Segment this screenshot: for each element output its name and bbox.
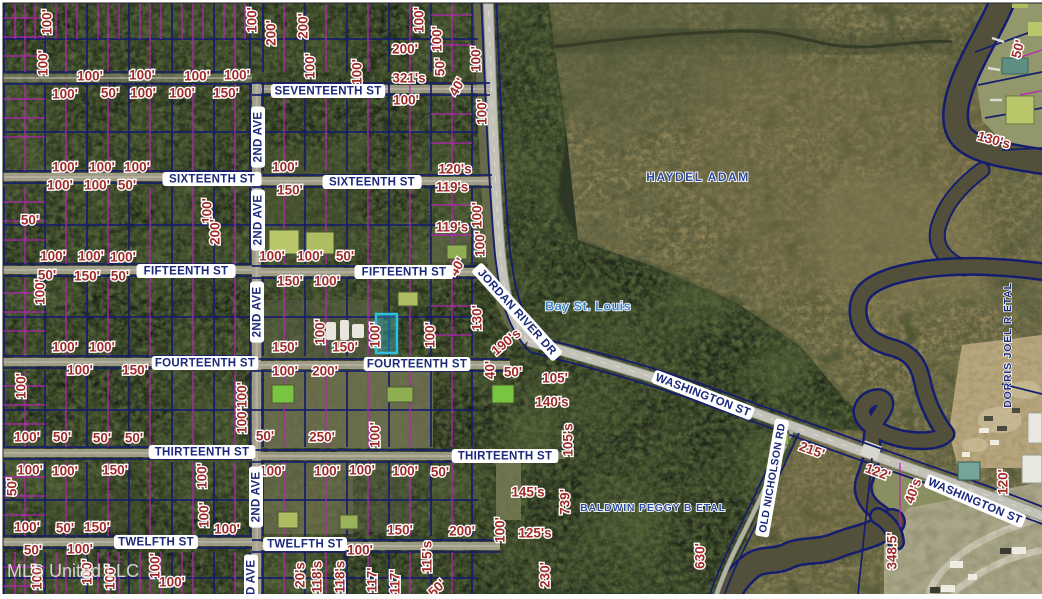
- svg-text:100': 100': [235, 408, 250, 434]
- svg-text:50': 50': [118, 178, 136, 193]
- svg-text:150': 150': [272, 340, 298, 355]
- svg-text:100': 100': [67, 542, 93, 557]
- svg-text:DORRIS JOEL R ETAL: DORRIS JOEL R ETAL: [1002, 282, 1014, 407]
- svg-text:50': 50': [93, 431, 111, 446]
- svg-text:150': 150': [332, 340, 358, 355]
- svg-text:230': 230': [538, 562, 553, 588]
- svg-text:Bay St. Louis: Bay St. Louis: [545, 299, 631, 314]
- svg-text:100': 100': [184, 69, 210, 84]
- svg-text:200': 200': [208, 219, 223, 245]
- svg-text:100': 100': [349, 463, 375, 478]
- svg-text:100': 100': [272, 160, 298, 175]
- svg-text:150': 150': [387, 523, 413, 538]
- svg-text:FIFTEENTH ST: FIFTEENTH ST: [144, 266, 229, 278]
- svg-text:100': 100': [40, 249, 66, 264]
- svg-text:FOURTEENTH ST: FOURTEENTH ST: [367, 359, 467, 371]
- svg-text:50': 50': [53, 430, 71, 445]
- svg-text:200': 200': [392, 42, 418, 57]
- svg-text:FOURTEENTH ST: FOURTEENTH ST: [155, 358, 255, 370]
- svg-text:100': 100': [235, 382, 250, 408]
- svg-text:145's: 145's: [511, 485, 544, 500]
- svg-text:100': 100': [129, 68, 155, 83]
- svg-text:150': 150': [277, 183, 303, 198]
- svg-text:2ND AVE: 2ND AVE: [246, 560, 258, 594]
- svg-text:321's: 321's: [392, 71, 425, 86]
- svg-text:50': 50': [504, 365, 522, 380]
- svg-text:100': 100': [245, 7, 260, 33]
- svg-text:100': 100': [475, 99, 490, 125]
- svg-text:100': 100': [350, 59, 365, 85]
- svg-text:118's: 118's: [310, 561, 325, 594]
- svg-text:200': 200': [296, 13, 311, 39]
- svg-text:100': 100': [195, 463, 210, 489]
- svg-text:348.5': 348.5': [885, 533, 900, 570]
- svg-text:150': 150': [277, 274, 303, 289]
- svg-text:630': 630': [693, 543, 708, 569]
- svg-text:200': 200': [264, 20, 279, 46]
- svg-text:100': 100': [52, 464, 78, 479]
- svg-text:117': 117': [365, 568, 380, 593]
- svg-text:150': 150': [84, 520, 110, 535]
- svg-text:100': 100': [40, 9, 55, 35]
- svg-text:100': 100': [78, 249, 104, 264]
- svg-text:150': 150': [122, 363, 148, 378]
- svg-text:100': 100': [89, 340, 115, 355]
- svg-text:100': 100': [392, 464, 418, 479]
- svg-text:100': 100': [89, 160, 115, 175]
- svg-text:105's: 105's: [561, 423, 576, 456]
- svg-text:40': 40': [483, 361, 498, 379]
- svg-text:140's: 140's: [535, 395, 568, 410]
- svg-text:100': 100': [368, 422, 383, 448]
- svg-text:50': 50': [125, 431, 143, 446]
- svg-text:50': 50': [256, 429, 274, 444]
- svg-text:119's: 119's: [436, 220, 469, 235]
- svg-text:100': 100': [52, 160, 78, 175]
- svg-text:200': 200': [312, 364, 338, 379]
- svg-text:118's: 118's: [333, 561, 348, 594]
- svg-text:50': 50': [431, 465, 449, 480]
- svg-text:100': 100': [430, 26, 445, 52]
- svg-text:50': 50': [101, 86, 119, 101]
- svg-text:100': 100': [493, 517, 508, 543]
- svg-text:100': 100': [393, 93, 419, 108]
- svg-text:100': 100': [33, 279, 48, 305]
- svg-text:50': 50': [56, 521, 74, 536]
- svg-text:117': 117': [388, 570, 403, 595]
- svg-text:100': 100': [159, 575, 185, 590]
- svg-text:100': 100': [303, 53, 318, 79]
- svg-text:100': 100': [347, 543, 373, 558]
- svg-text:100': 100': [14, 373, 29, 399]
- svg-text:2ND AVE: 2ND AVE: [253, 112, 265, 163]
- svg-text:119's: 119's: [436, 180, 469, 195]
- svg-text:MLS United LLC: MLS United LLC: [7, 561, 139, 581]
- svg-text:2ND AVE: 2ND AVE: [253, 195, 265, 246]
- svg-text:50': 50': [24, 543, 42, 558]
- svg-text:115's: 115's: [420, 541, 435, 574]
- svg-text:100': 100': [423, 322, 438, 348]
- svg-text:100': 100': [169, 86, 195, 101]
- svg-text:105': 105': [542, 371, 568, 386]
- svg-text:20's: 20's: [293, 562, 308, 588]
- svg-text:FIFTEENTH ST: FIFTEENTH ST: [362, 267, 447, 279]
- svg-text:100': 100': [124, 160, 150, 175]
- svg-text:150': 150': [74, 269, 100, 284]
- svg-text:100': 100': [17, 463, 43, 478]
- svg-text:HAYDEL ADAM: HAYDEL ADAM: [646, 170, 749, 184]
- svg-text:100': 100': [272, 364, 298, 379]
- svg-text:100': 100': [313, 319, 328, 345]
- svg-text:100': 100': [197, 502, 212, 528]
- svg-text:130': 130': [470, 305, 485, 331]
- svg-text:100': 100': [368, 322, 383, 348]
- svg-text:120's: 120's: [438, 162, 471, 177]
- svg-text:100': 100': [84, 178, 110, 193]
- svg-text:100': 100': [36, 50, 51, 76]
- svg-text:100': 100': [473, 231, 488, 257]
- svg-text:TWELFTH ST: TWELFTH ST: [267, 539, 343, 551]
- svg-text:50': 50': [21, 213, 39, 228]
- svg-text:100': 100': [259, 249, 285, 264]
- svg-text:100': 100': [130, 86, 156, 101]
- svg-text:100': 100': [67, 363, 93, 378]
- svg-text:100': 100': [297, 249, 323, 264]
- svg-text:739': 739': [558, 489, 573, 515]
- svg-text:100': 100': [214, 522, 240, 537]
- svg-text:THIRTEENTH ST: THIRTEENTH ST: [155, 447, 250, 459]
- svg-text:125's: 125's: [518, 526, 551, 541]
- svg-text:100': 100': [314, 464, 340, 479]
- svg-text:200': 200': [449, 524, 475, 539]
- svg-text:150': 150': [213, 86, 239, 101]
- svg-text:50': 50': [5, 478, 20, 496]
- svg-text:50': 50': [336, 249, 354, 264]
- svg-text:100': 100': [14, 430, 40, 445]
- svg-text:SIXTEENTH ST: SIXTEENTH ST: [169, 174, 255, 186]
- svg-text:2ND AVE: 2ND AVE: [252, 287, 264, 338]
- svg-text:250': 250': [309, 430, 335, 445]
- svg-text:SIXTEENTH ST: SIXTEENTH ST: [329, 177, 415, 189]
- svg-text:100': 100': [47, 178, 73, 193]
- svg-text:100': 100': [52, 87, 78, 102]
- svg-text:TWELFTH ST: TWELFTH ST: [118, 537, 194, 549]
- svg-text:100': 100': [314, 274, 340, 289]
- svg-text:100': 100': [77, 69, 103, 84]
- svg-text:100': 100': [412, 7, 427, 33]
- svg-text:100': 100': [52, 340, 78, 355]
- svg-text:120': 120': [996, 469, 1011, 495]
- svg-text:100': 100': [470, 202, 485, 228]
- svg-text:SEVENTEENTH ST: SEVENTEENTH ST: [274, 86, 381, 98]
- svg-text:BALDWIN PEGGY B ETAL: BALDWIN PEGGY B ETAL: [580, 502, 726, 514]
- svg-text:50': 50': [111, 269, 129, 284]
- svg-text:2ND AVE: 2ND AVE: [251, 472, 263, 523]
- svg-text:100': 100': [224, 68, 250, 83]
- svg-text:50': 50': [433, 58, 448, 76]
- svg-text:100': 100': [14, 520, 40, 535]
- svg-text:100': 100': [469, 46, 484, 72]
- svg-text:100': 100': [110, 250, 136, 265]
- svg-text:THIRTEENTH ST: THIRTEENTH ST: [458, 451, 553, 463]
- svg-text:150': 150': [102, 463, 128, 478]
